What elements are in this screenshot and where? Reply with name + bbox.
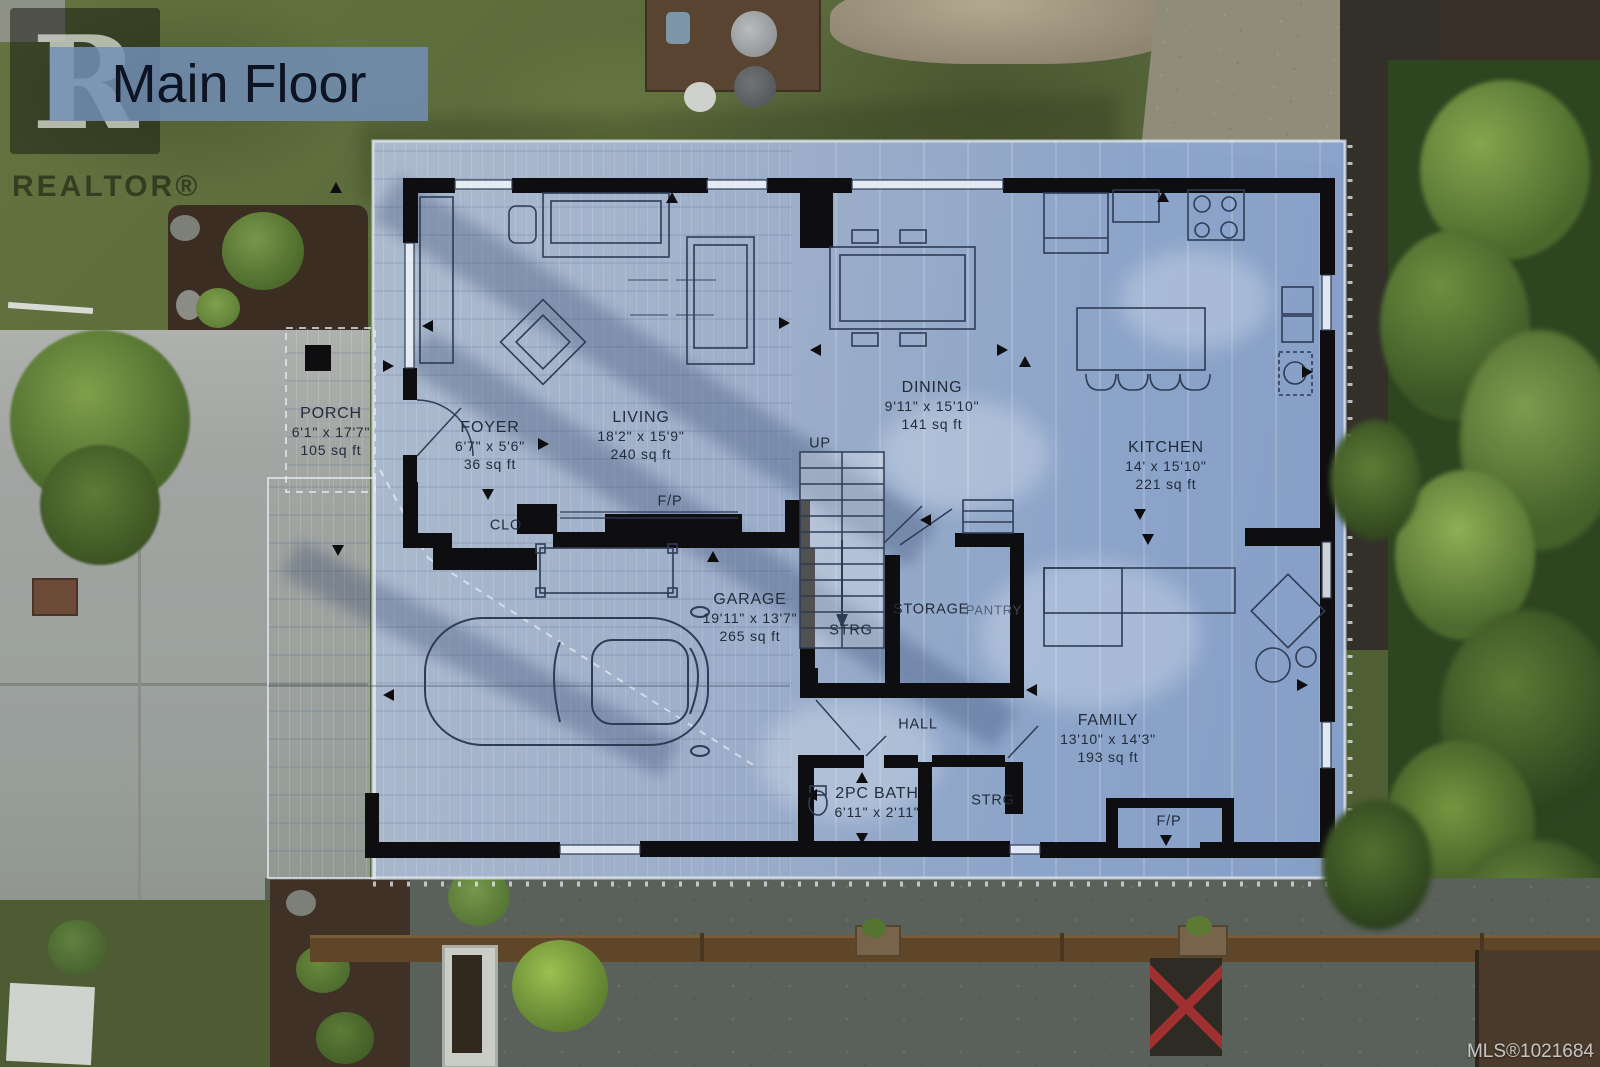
tree-overhang <box>1322 800 1432 930</box>
room-dims: 19'11" x 13'7" <box>703 610 798 628</box>
room-area: 240 sq ft <box>597 446 684 464</box>
room-name: 2PC BATH <box>834 784 919 804</box>
room-label-living: LIVING 18'2" x 15'9" 240 sq ft <box>597 408 684 464</box>
sofa-outline <box>543 193 669 257</box>
strg-door-leaf <box>1008 726 1038 758</box>
page-title: Main Floor <box>111 53 366 115</box>
room-label-kitchen: KITCHEN 14' x 15'10" 221 sq ft <box>1125 438 1206 494</box>
car-outline <box>425 607 709 756</box>
direction-arrow <box>1160 835 1172 846</box>
car-rear-window <box>554 642 560 722</box>
room-area: 141 sq ft <box>885 416 980 434</box>
storage-door-leaf <box>900 509 952 545</box>
direction-arrow <box>1026 684 1037 696</box>
direction-arrow <box>383 360 394 372</box>
room-label-garage: GARAGE 19'11" x 13'7" 265 sq ft <box>703 590 798 646</box>
side-table <box>509 206 536 243</box>
wall-oven <box>1113 190 1159 222</box>
direction-arrow <box>707 551 719 562</box>
tree-overhang <box>1330 420 1420 540</box>
window <box>1322 275 1331 330</box>
kitchen-island <box>1077 308 1205 370</box>
loveseat-outline <box>687 237 754 364</box>
room-name: KITCHEN <box>1125 438 1206 458</box>
burner <box>1221 222 1237 238</box>
label-hall: HALL <box>898 716 937 735</box>
dining-table-inner <box>840 255 965 321</box>
label-pantry: PANTRY <box>966 603 1022 620</box>
car-windshield <box>690 648 698 714</box>
stair-door-leaf <box>884 506 922 543</box>
sideboard-outline <box>420 197 453 363</box>
room-label-bath: 2PC BATH 6'11" x 2'11" <box>834 784 919 822</box>
title-banner: Main Floor <box>50 47 428 121</box>
bath-door-leaf <box>866 736 886 756</box>
car-mirror <box>691 746 709 756</box>
round-table <box>1256 648 1290 682</box>
accent-chair-cushion <box>516 315 570 369</box>
car-roof-glass <box>592 640 688 724</box>
room-name: GARAGE <box>703 590 798 610</box>
direction-arrow <box>538 438 549 450</box>
window <box>1322 722 1331 768</box>
bench-outline <box>540 548 673 593</box>
sectional-sofa <box>1044 568 1235 613</box>
direction-arrow <box>779 317 790 329</box>
room-label-dining: DINING 9'11" x 15'10" 141 sq ft <box>885 378 980 434</box>
burner <box>1194 196 1210 212</box>
car-body <box>425 618 708 745</box>
room-name: LIVING <box>597 408 684 428</box>
bar-stool <box>1180 374 1210 390</box>
direction-arrow <box>1134 509 1146 520</box>
sectional-sofa-chaise <box>1044 568 1122 646</box>
direction-arrow <box>422 320 433 332</box>
kitchen-sink-basin <box>1282 316 1313 342</box>
room-area: 36 sq ft <box>455 456 525 474</box>
room-dims: 6'7" x 5'6" <box>455 438 525 456</box>
round-table-small <box>1296 647 1316 667</box>
direction-arrow <box>330 182 342 193</box>
room-dims: 14' x 15'10" <box>1125 458 1206 476</box>
label-strg-garage: STRG <box>829 622 872 641</box>
pantry-shelf-lines <box>963 511 1013 522</box>
label-storage: STORAGE <box>893 601 969 620</box>
dining-chair <box>852 333 878 346</box>
bar-stool <box>1118 374 1148 390</box>
room-name: FAMILY <box>1060 711 1156 731</box>
label-strg-hall: STRG <box>971 792 1014 811</box>
staircase <box>800 452 884 648</box>
window <box>405 243 414 368</box>
direction-arrow <box>482 489 494 500</box>
room-dims: 18'2" x 15'9" <box>597 428 684 446</box>
aerial-photo-scene: PORCH 6'1" x 17'7" 105 sq ft FOYER 6'7" … <box>0 0 1600 1067</box>
mls-number: MLS®1021684 <box>1467 1041 1594 1063</box>
label-stairs-up: UP <box>809 435 831 454</box>
window <box>1322 542 1331 598</box>
room-name: FOYER <box>455 418 525 438</box>
room-dims: 13'10" x 14'3" <box>1060 731 1156 749</box>
room-area: 193 sq ft <box>1060 749 1156 767</box>
burner <box>1195 223 1209 237</box>
room-area: 221 sq ft <box>1125 476 1206 494</box>
direction-arrow <box>1297 679 1308 691</box>
kitchen-sink-basin <box>1282 287 1313 314</box>
window <box>707 180 767 189</box>
direction-arrow <box>997 344 1008 356</box>
dining-chair <box>900 333 926 346</box>
window <box>1010 845 1040 854</box>
fridge <box>1044 193 1108 253</box>
pantry-shelves <box>963 500 1013 533</box>
room-label-family: FAMILY 13'10" x 14'3" 193 sq ft <box>1060 711 1156 767</box>
room-dims: 9'11" x 15'10" <box>885 398 980 416</box>
burner <box>1222 197 1236 211</box>
window <box>455 180 512 189</box>
dining-chair <box>900 230 926 243</box>
room-name: PORCH <box>292 404 371 424</box>
bar-stool <box>1150 374 1180 390</box>
accent-chair <box>501 300 586 385</box>
dining-table <box>830 247 975 329</box>
family-chair <box>1251 574 1325 648</box>
window <box>852 180 1003 189</box>
label-closet: CLO <box>490 517 522 536</box>
sofa-cushion-line <box>551 201 661 243</box>
label-fireplace-living: F/P <box>658 493 683 512</box>
room-dims: 6'11" x 2'11" <box>834 804 919 822</box>
direction-arrow <box>920 514 931 526</box>
garage-door-opening <box>560 845 640 854</box>
direction-arrow <box>810 344 821 356</box>
room-area: 265 sq ft <box>703 628 798 646</box>
dining-chair <box>852 230 878 243</box>
label-fireplace-family: F/P <box>1157 813 1182 832</box>
direction-arrow <box>383 689 394 701</box>
direction-arrow <box>1142 534 1154 545</box>
room-label-foyer: FOYER 6'7" x 5'6" 36 sq ft <box>455 418 525 474</box>
direction-arrow <box>332 545 344 556</box>
room-name: DINING <box>885 378 980 398</box>
direction-arrow <box>856 772 868 783</box>
realtor-wordmark: REALTOR® <box>12 170 200 204</box>
room-dims: 6'1" x 17'7" <box>292 424 371 442</box>
hall-door-leaf <box>816 700 860 750</box>
rug-lines <box>628 280 716 315</box>
bar-stool <box>1086 374 1116 390</box>
room-area: 105 sq ft <box>292 442 371 460</box>
direction-arrow <box>1019 356 1031 367</box>
garage-roof-edge <box>268 478 375 878</box>
room-label-porch: PORCH 6'1" x 17'7" 105 sq ft <box>292 404 371 460</box>
loveseat-cushion-line <box>694 245 747 348</box>
